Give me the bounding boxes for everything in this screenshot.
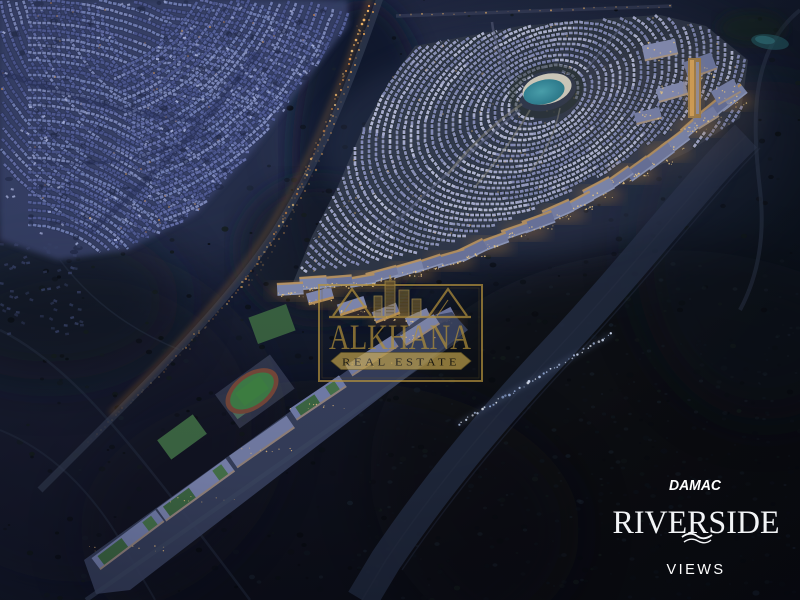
svg-text:VIEWS: VIEWS bbox=[667, 561, 726, 578]
svg-text:DAMAC: DAMAC bbox=[669, 478, 722, 494]
svg-text:ALKHANA: ALKHANA bbox=[329, 317, 471, 357]
svg-text:REAL ESTATE: REAL ESTATE bbox=[342, 357, 460, 369]
